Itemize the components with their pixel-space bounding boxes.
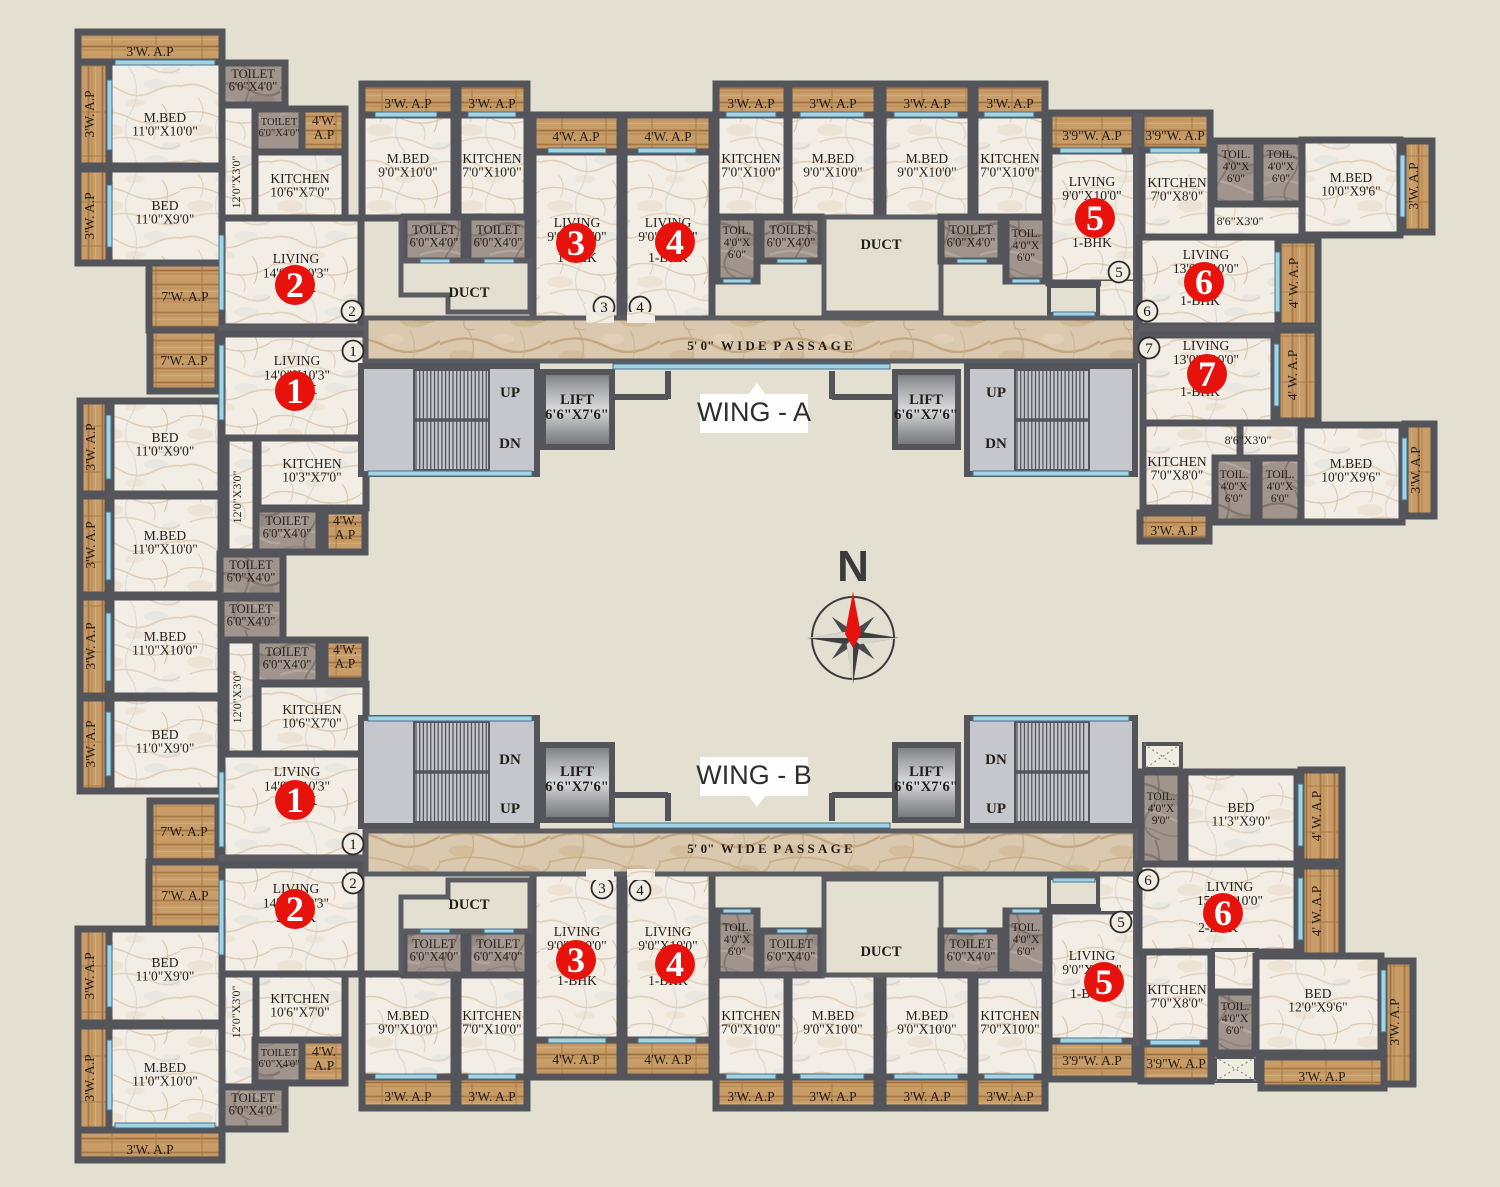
svg-text:4'0"X: 4'0"X bbox=[1013, 240, 1040, 252]
svg-text:DUCT: DUCT bbox=[860, 944, 901, 960]
svg-text:3'W. A.P: 3'W. A.P bbox=[384, 1089, 431, 1104]
svg-text:6'0"X4'0": 6'0"X4'0" bbox=[947, 950, 996, 964]
svg-text:LIVING: LIVING bbox=[273, 251, 320, 266]
svg-text:9'0"X10'0": 9'0"X10'0" bbox=[897, 1022, 956, 1037]
svg-text:4' W. A.P: 4' W. A.P bbox=[1309, 886, 1324, 936]
svg-text:3'W. A.P: 3'W. A.P bbox=[809, 1089, 856, 1104]
svg-text:3'W. A.P: 3'W. A.P bbox=[82, 192, 97, 239]
svg-text:7: 7 bbox=[1145, 341, 1153, 357]
svg-text:6'0": 6'0" bbox=[1271, 493, 1289, 505]
svg-text:6'0"X4'0": 6'0"X4'0" bbox=[474, 950, 523, 964]
svg-text:LIVING: LIVING bbox=[274, 764, 321, 779]
svg-text:6'0"X4'0": 6'0"X4'0" bbox=[767, 236, 816, 250]
svg-text:11'0"X10'0": 11'0"X10'0" bbox=[132, 1074, 198, 1089]
svg-text:6'6"X7'6": 6'6"X7'6" bbox=[894, 407, 958, 423]
svg-text:UP: UP bbox=[500, 385, 520, 401]
svg-text:4'0"X: 4'0"X bbox=[1013, 934, 1040, 946]
svg-text:LIFT: LIFT bbox=[560, 392, 594, 408]
svg-text:TOIL.: TOIL. bbox=[723, 225, 752, 237]
svg-text:6'0"X4'0": 6'0"X4'0" bbox=[227, 571, 276, 585]
svg-text:11'0"X10'0": 11'0"X10'0" bbox=[132, 124, 198, 139]
svg-text:7'0"X8'0": 7'0"X8'0" bbox=[1151, 189, 1204, 204]
svg-text:9'0"X10'0": 9'0"X10'0" bbox=[378, 165, 437, 180]
svg-text:TOIL.: TOIL. bbox=[1266, 469, 1295, 481]
svg-text:12'0"X3'0": 12'0"X3'0" bbox=[230, 471, 244, 524]
svg-text:LIVING: LIVING bbox=[1183, 338, 1230, 353]
svg-text:11'0"X9'0": 11'0"X9'0" bbox=[136, 212, 195, 227]
svg-text:6'6"X7'6": 6'6"X7'6" bbox=[545, 779, 609, 795]
svg-text:4'W.: 4'W. bbox=[333, 642, 357, 657]
svg-text:10'6"X7'0": 10'6"X7'0" bbox=[270, 1005, 329, 1020]
svg-text:6'0"X4'0": 6'0"X4'0" bbox=[410, 950, 459, 964]
svg-text:7'W. A.P: 7'W. A.P bbox=[161, 888, 208, 903]
svg-text:UP: UP bbox=[500, 801, 520, 817]
svg-text:7'0"X10'0": 7'0"X10'0" bbox=[980, 1022, 1039, 1037]
svg-text:LIFT: LIFT bbox=[909, 392, 943, 408]
svg-text:7'W. A.P: 7'W. A.P bbox=[160, 353, 207, 368]
svg-text:LIVING: LIVING bbox=[1183, 247, 1230, 262]
svg-text:3'W. A.P: 3'W. A.P bbox=[83, 720, 98, 767]
svg-text:9'0": 9'0" bbox=[1152, 815, 1170, 827]
svg-text:2: 2 bbox=[286, 889, 304, 929]
svg-text:3'W. A.P: 3'W. A.P bbox=[1150, 523, 1197, 538]
svg-text:6'0": 6'0" bbox=[1227, 173, 1245, 185]
svg-text:12'0"X3'0": 12'0"X3'0" bbox=[229, 156, 243, 209]
svg-text:4'0"X: 4'0"X bbox=[1148, 803, 1175, 815]
svg-text:4'0"X: 4'0"X bbox=[724, 934, 751, 946]
svg-text:6'0"X4'0": 6'0"X4'0" bbox=[259, 1059, 300, 1070]
svg-text:LIFT: LIFT bbox=[909, 764, 943, 780]
svg-text:12'0"X9'6": 12'0"X9'6" bbox=[1288, 1000, 1347, 1015]
svg-text:7'0"X10'0": 7'0"X10'0" bbox=[980, 165, 1039, 180]
svg-text:4'0"X: 4'0"X bbox=[724, 237, 751, 249]
svg-text:3'W. A.P: 3'W. A.P bbox=[468, 1089, 515, 1104]
svg-text:6'0"X4'0": 6'0"X4'0" bbox=[767, 950, 816, 964]
svg-text:LIVING: LIVING bbox=[645, 924, 692, 939]
svg-text:A.P: A.P bbox=[335, 527, 356, 542]
svg-text:TOIL.: TOIL. bbox=[1267, 149, 1296, 161]
svg-text:3'W. A.P: 3'W. A.P bbox=[83, 622, 98, 669]
svg-text:5: 5 bbox=[1117, 915, 1125, 931]
svg-text:7'0"X10'0": 7'0"X10'0" bbox=[721, 1022, 780, 1037]
svg-text:4'0"X: 4'0"X bbox=[1222, 1013, 1249, 1025]
svg-text:TOILET: TOILET bbox=[261, 117, 298, 128]
svg-text:6: 6 bbox=[1144, 873, 1152, 889]
svg-text:TOIL.: TOIL. bbox=[1012, 228, 1041, 240]
svg-text:6'0"X4'0": 6'0"X4'0" bbox=[229, 1104, 278, 1118]
svg-text:UP: UP bbox=[986, 801, 1006, 817]
svg-text:1: 1 bbox=[286, 780, 304, 820]
svg-text:6'0"X4'0": 6'0"X4'0" bbox=[410, 236, 459, 250]
svg-text:LIVING: LIVING bbox=[274, 353, 321, 368]
svg-text:4'W.: 4'W. bbox=[312, 1044, 336, 1059]
svg-text:4: 4 bbox=[666, 222, 684, 262]
svg-text:6'0": 6'0" bbox=[728, 946, 746, 958]
svg-text:LIVING: LIVING bbox=[554, 924, 601, 939]
svg-text:2: 2 bbox=[349, 876, 357, 892]
svg-text:6'0"X4'0": 6'0"X4'0" bbox=[229, 80, 278, 94]
svg-text:4'W.: 4'W. bbox=[333, 513, 357, 528]
svg-text:11'0"X9'0": 11'0"X9'0" bbox=[136, 741, 195, 756]
svg-text:12'0"X3'0": 12'0"X3'0" bbox=[229, 986, 243, 1039]
svg-text:7'0"X10'0": 7'0"X10'0" bbox=[462, 165, 521, 180]
svg-text:9'0"X10'0": 9'0"X10'0" bbox=[803, 1022, 862, 1037]
svg-text:7'0"X8'0": 7'0"X8'0" bbox=[1151, 996, 1204, 1011]
svg-text:4'W. A.P: 4'W. A.P bbox=[644, 129, 691, 144]
svg-text:4'0"X: 4'0"X bbox=[1267, 481, 1294, 493]
svg-text:4' W. A.P: 4' W. A.P bbox=[1309, 791, 1324, 841]
svg-text:6'0"X4'0": 6'0"X4'0" bbox=[227, 615, 276, 629]
svg-text:6'0"X4'0": 6'0"X4'0" bbox=[259, 128, 300, 139]
svg-text:1: 1 bbox=[286, 371, 304, 411]
svg-text:6'0"X4'0": 6'0"X4'0" bbox=[474, 236, 523, 250]
svg-text:3'W. A.P: 3'W. A.P bbox=[986, 96, 1033, 111]
svg-text:LIFT: LIFT bbox=[560, 764, 594, 780]
svg-text:3'W. A.P: 3'W. A.P bbox=[82, 952, 97, 999]
svg-text:6'0": 6'0" bbox=[1225, 493, 1243, 505]
svg-text:LIVING: LIVING bbox=[1069, 174, 1116, 189]
svg-text:10'6"X7'0": 10'6"X7'0" bbox=[270, 185, 329, 200]
svg-text:WING - B: WING - B bbox=[696, 760, 812, 790]
svg-text:UP: UP bbox=[986, 385, 1006, 401]
svg-text:3'W. A.P: 3'W. A.P bbox=[1387, 998, 1402, 1045]
svg-text:8'6"X3'0": 8'6"X3'0" bbox=[1225, 433, 1272, 447]
svg-text:4' W. A.P: 4' W. A.P bbox=[1285, 350, 1300, 400]
svg-text:7'0"X8'0": 7'0"X8'0" bbox=[1151, 468, 1204, 483]
svg-text:3'W. A.P: 3'W. A.P bbox=[468, 96, 515, 111]
svg-text:5: 5 bbox=[1095, 962, 1113, 1002]
svg-text:3'W. A.P: 3'W. A.P bbox=[727, 1089, 774, 1104]
svg-text:11'0"X9'0": 11'0"X9'0" bbox=[136, 444, 195, 459]
svg-text:6'0"X4'0": 6'0"X4'0" bbox=[947, 236, 996, 250]
svg-text:10'6"X7'0": 10'6"X7'0" bbox=[282, 716, 341, 731]
svg-text:A.P: A.P bbox=[314, 127, 335, 142]
svg-text:TOIL.: TOIL. bbox=[1012, 922, 1041, 934]
svg-text:4'W.: 4'W. bbox=[312, 113, 336, 128]
svg-text:TOIL.: TOIL. bbox=[1222, 149, 1251, 161]
svg-text:3'W. A.P: 3'W. A.P bbox=[1298, 1069, 1345, 1084]
svg-text:3'9"W. A.P: 3'9"W. A.P bbox=[1146, 1056, 1206, 1071]
svg-text:10'3"X7'0": 10'3"X7'0" bbox=[282, 470, 341, 485]
svg-text:DN: DN bbox=[499, 436, 521, 452]
svg-text:1: 1 bbox=[349, 837, 357, 853]
svg-text:5: 5 bbox=[1115, 265, 1123, 281]
svg-text:9'0"X10'0": 9'0"X10'0" bbox=[897, 165, 956, 180]
svg-text:7'0"X10'0": 7'0"X10'0" bbox=[721, 165, 780, 180]
svg-text:10'0"X9'6": 10'0"X9'6" bbox=[1321, 470, 1380, 485]
svg-text:3'W. A.P: 3'W. A.P bbox=[903, 96, 950, 111]
svg-text:DN: DN bbox=[985, 752, 1007, 768]
svg-text:1: 1 bbox=[349, 344, 357, 360]
svg-text:3'W. A.P: 3'W. A.P bbox=[83, 423, 98, 470]
svg-text:6'0": 6'0" bbox=[728, 249, 746, 261]
svg-text:6: 6 bbox=[1143, 304, 1151, 320]
svg-text:2: 2 bbox=[348, 304, 356, 320]
svg-text:5: 5 bbox=[1086, 198, 1104, 238]
svg-text:6: 6 bbox=[1214, 893, 1232, 933]
svg-text:7'W. A.P: 7'W. A.P bbox=[161, 289, 208, 304]
svg-text:10'0"X9'6": 10'0"X9'6" bbox=[1321, 184, 1380, 199]
svg-text:3'W. A.P: 3'W. A.P bbox=[82, 90, 97, 137]
svg-text:4'0"X: 4'0"X bbox=[1268, 161, 1295, 173]
svg-text:3'9"W. A.P: 3'9"W. A.P bbox=[1062, 1053, 1122, 1068]
svg-text:DUCT: DUCT bbox=[860, 237, 901, 253]
svg-text:11'0"X9'0": 11'0"X9'0" bbox=[136, 969, 195, 984]
svg-text:11'0"X10'0": 11'0"X10'0" bbox=[132, 542, 198, 557]
svg-text:6'0"X4'0": 6'0"X4'0" bbox=[263, 527, 312, 541]
svg-text:3'W. A.P: 3'W. A.P bbox=[809, 96, 856, 111]
svg-text:9'0"X10'0": 9'0"X10'0" bbox=[803, 165, 862, 180]
svg-text:LIVING: LIVING bbox=[1069, 948, 1116, 963]
svg-text:11'3"X9'0": 11'3"X9'0" bbox=[1212, 814, 1271, 829]
svg-text:4'W. A.P: 4'W. A.P bbox=[552, 1052, 599, 1067]
svg-text:9'0"X10'0": 9'0"X10'0" bbox=[378, 1022, 437, 1037]
svg-text:4'0"X: 4'0"X bbox=[1223, 161, 1250, 173]
svg-text:3'W. A.P: 3'W. A.P bbox=[126, 1142, 173, 1157]
svg-text:5' 0" W I D E P A S S A G E: 5' 0" W I D E P A S S A G E bbox=[687, 338, 852, 353]
svg-text:3'9"W. A.P: 3'9"W. A.P bbox=[1062, 128, 1122, 143]
svg-text:3'W. A.P: 3'W. A.P bbox=[986, 1089, 1033, 1104]
svg-text:8'6"X3'0": 8'6"X3'0" bbox=[1217, 214, 1264, 228]
svg-text:3: 3 bbox=[567, 940, 585, 980]
svg-text:TOIL.: TOIL. bbox=[1147, 791, 1176, 803]
svg-text:TOILET: TOILET bbox=[261, 1048, 298, 1059]
svg-text:11'0"X10'0": 11'0"X10'0" bbox=[132, 643, 198, 658]
svg-text:3'W. A.P: 3'W. A.P bbox=[903, 1089, 950, 1104]
svg-text:2: 2 bbox=[286, 265, 304, 305]
svg-text:4: 4 bbox=[636, 883, 644, 899]
svg-text:7'0"X10'0": 7'0"X10'0" bbox=[462, 1022, 521, 1037]
svg-text:6'0": 6'0" bbox=[1226, 1025, 1244, 1037]
svg-text:7'W. A.P: 7'W. A.P bbox=[160, 824, 207, 839]
svg-text:3'W. A.P: 3'W. A.P bbox=[727, 96, 774, 111]
svg-text:3'W. A.P: 3'W. A.P bbox=[82, 1054, 97, 1101]
svg-text:6'6"X7'6": 6'6"X7'6" bbox=[894, 779, 958, 795]
svg-text:7: 7 bbox=[1198, 354, 1216, 394]
svg-text:4: 4 bbox=[666, 944, 684, 984]
svg-text:6: 6 bbox=[1195, 262, 1213, 302]
svg-text:4' W. A.P: 4' W. A.P bbox=[1286, 258, 1301, 308]
svg-text:3'W. A.P: 3'W. A.P bbox=[1406, 162, 1421, 209]
svg-text:3'W. A.P: 3'W. A.P bbox=[384, 96, 431, 111]
svg-text:DUCT: DUCT bbox=[448, 285, 489, 301]
svg-text:3'W. A.P: 3'W. A.P bbox=[126, 44, 173, 59]
svg-text:DN: DN bbox=[499, 752, 521, 768]
svg-text:6'0": 6'0" bbox=[1017, 946, 1035, 958]
svg-text:LIVING: LIVING bbox=[1207, 879, 1254, 894]
svg-text:4'0"X: 4'0"X bbox=[1221, 481, 1248, 493]
svg-text:3'9"W. A.P: 3'9"W. A.P bbox=[1145, 128, 1205, 143]
svg-text:N: N bbox=[837, 542, 869, 591]
svg-text:DUCT: DUCT bbox=[448, 897, 489, 913]
svg-text:TOIL.: TOIL. bbox=[723, 922, 752, 934]
svg-text:6'0"X4'0": 6'0"X4'0" bbox=[263, 658, 312, 672]
svg-text:6'6"X7'6": 6'6"X7'6" bbox=[545, 407, 609, 423]
svg-text:TOIL.: TOIL. bbox=[1221, 1001, 1250, 1013]
svg-text:A.P: A.P bbox=[314, 1058, 335, 1073]
svg-text:3'W. A.P: 3'W. A.P bbox=[83, 521, 98, 568]
svg-text:3: 3 bbox=[567, 223, 585, 263]
svg-text:6'0": 6'0" bbox=[1017, 252, 1035, 264]
svg-text:6'0": 6'0" bbox=[1272, 173, 1290, 185]
svg-text:4'W. A.P: 4'W. A.P bbox=[552, 129, 599, 144]
svg-text:3: 3 bbox=[598, 881, 606, 897]
svg-text:5' 0" W I D E P A S S A G E: 5' 0" W I D E P A S S A G E bbox=[687, 841, 852, 856]
svg-text:3'W. A.P: 3'W. A.P bbox=[1408, 446, 1423, 493]
svg-text:4'W. A.P: 4'W. A.P bbox=[644, 1052, 691, 1067]
svg-text:WING - A: WING - A bbox=[697, 397, 811, 427]
svg-text:DN: DN bbox=[985, 436, 1007, 452]
svg-text:TOIL.: TOIL. bbox=[1220, 469, 1249, 481]
svg-text:A.P: A.P bbox=[335, 656, 356, 671]
svg-text:12'0"X3'0": 12'0"X3'0" bbox=[230, 671, 244, 724]
